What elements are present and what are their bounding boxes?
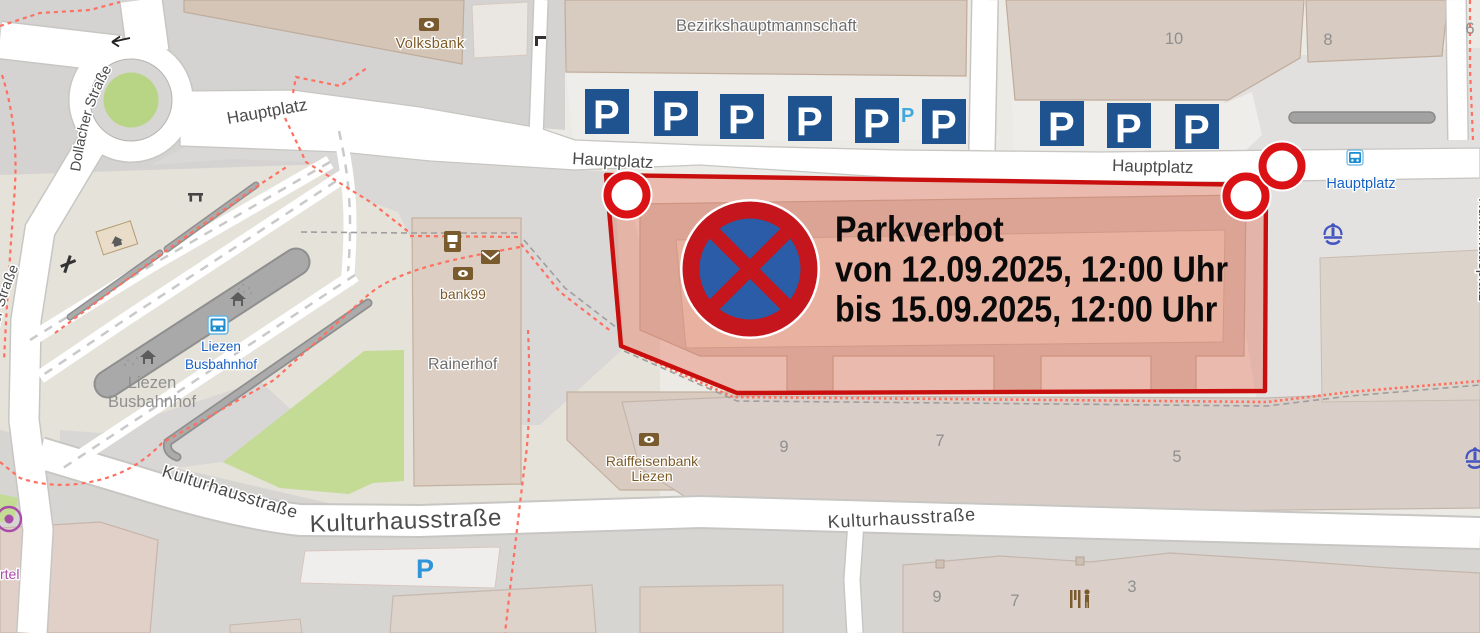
svg-text:9: 9	[932, 588, 941, 606]
svg-text:3: 3	[1127, 578, 1136, 596]
svg-text:Hauptplatz: Hauptplatz	[1112, 156, 1194, 177]
svg-text:Busbahnhof: Busbahnhof	[108, 393, 196, 411]
svg-text:Volksbank: Volksbank	[396, 36, 465, 52]
svg-text:P: P	[416, 554, 434, 584]
svg-text:Liezen: Liezen	[201, 339, 241, 354]
svg-text:rtel: rtel	[0, 566, 19, 582]
svg-text:8: 8	[1323, 31, 1332, 49]
svg-text:von 12.09.2025, 12:00 Uhr: von 12.09.2025, 12:00 Uhr	[835, 250, 1228, 290]
svg-text:10: 10	[1165, 30, 1183, 48]
svg-text:P: P	[901, 105, 914, 127]
svg-text:9: 9	[779, 438, 788, 456]
svg-text:5: 5	[1172, 448, 1181, 466]
svg-text:Liezen: Liezen	[128, 374, 177, 392]
svg-text:Bezirkshauptmannschaft: Bezirkshauptmannschaft	[676, 17, 857, 35]
svg-text:Rainerhof: Rainerhof	[428, 356, 498, 373]
svg-text:bis 15.09.2025, 12:00 Uhr: bis 15.09.2025, 12:00 Uhr	[835, 290, 1217, 330]
svg-text:Liezen: Liezen	[631, 468, 672, 484]
svg-text:Busbahnhof: Busbahnhof	[185, 357, 257, 372]
svg-text:6: 6	[1465, 20, 1474, 38]
svg-text:Raiffeisenbank: Raiffeisenbank	[606, 453, 699, 469]
svg-text:bank99: bank99	[440, 286, 486, 302]
svg-text:7: 7	[1010, 592, 1019, 610]
svg-text:Parkverbot: Parkverbot	[835, 210, 1004, 250]
svg-text:7: 7	[935, 432, 944, 450]
svg-text:Hauptplatz: Hauptplatz	[1326, 176, 1395, 192]
svg-text:Kulturhausplatz: Kulturhausplatz	[1475, 198, 1480, 301]
